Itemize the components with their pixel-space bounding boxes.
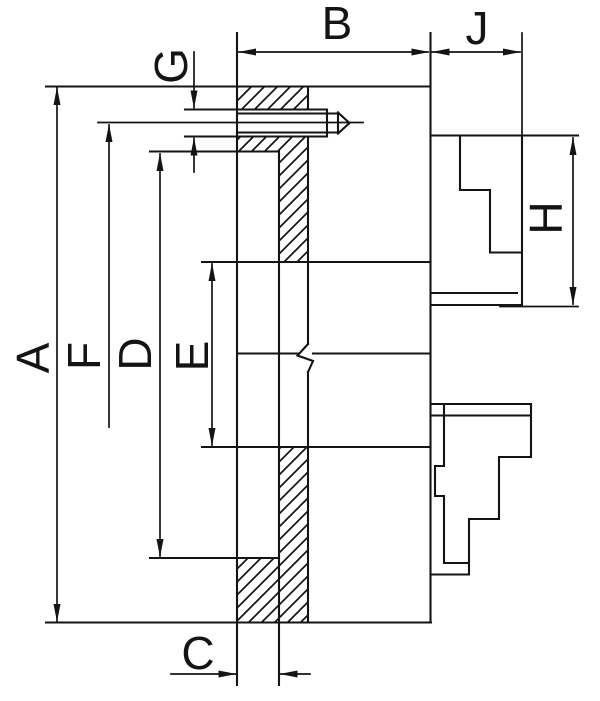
dimension-C: C (171, 627, 310, 679)
dim-label-J: J (466, 2, 489, 54)
dimension-E: E (166, 263, 218, 446)
hatch-lower-web-flange (237, 447, 308, 623)
arrowhead-up-icon (570, 137, 577, 155)
dimension-A: A (7, 87, 61, 622)
arrowhead-up-icon (209, 263, 216, 281)
chuck-technical-drawing: A B J G F D E (0, 0, 600, 701)
arrowhead-left-icon (432, 49, 450, 56)
dimension-H: H (500, 137, 578, 307)
arrowhead-down-icon (570, 287, 577, 305)
hatch-upper-web (237, 137, 308, 263)
drawing-canvas: A B J G F D E (0, 0, 600, 701)
arrowhead-right-icon (503, 49, 521, 56)
dim-label-B: B (322, 0, 353, 49)
dim-label-H: H (520, 201, 572, 234)
arrowhead-left-icon (280, 671, 298, 678)
dim-label-E: E (166, 341, 218, 372)
arrowhead-down-icon (54, 604, 61, 622)
arrowhead-down-icon (191, 91, 198, 109)
dimension-D: D (109, 153, 164, 557)
arrowhead-up-icon (54, 87, 61, 105)
arrowhead-right-icon (219, 671, 237, 678)
dimension-B: B (238, 0, 430, 56)
arrowhead-left-icon (238, 49, 256, 56)
dim-label-A: A (7, 342, 59, 373)
arrowhead-up-icon (191, 138, 198, 156)
dimension-J: J (432, 2, 523, 135)
arrowhead-up-icon (157, 153, 164, 171)
bottom-jaw (431, 404, 531, 575)
arrowhead-down-icon (209, 428, 216, 446)
arrowhead-up-icon (106, 124, 113, 142)
dim-label-F: F (58, 342, 110, 370)
arrowhead-right-icon (412, 49, 430, 56)
dim-label-D: D (109, 337, 161, 370)
dim-label-C: C (181, 627, 214, 679)
hatch-top-flange (237, 87, 308, 110)
arrowhead-down-icon (157, 539, 164, 557)
dim-label-G: G (145, 48, 197, 84)
